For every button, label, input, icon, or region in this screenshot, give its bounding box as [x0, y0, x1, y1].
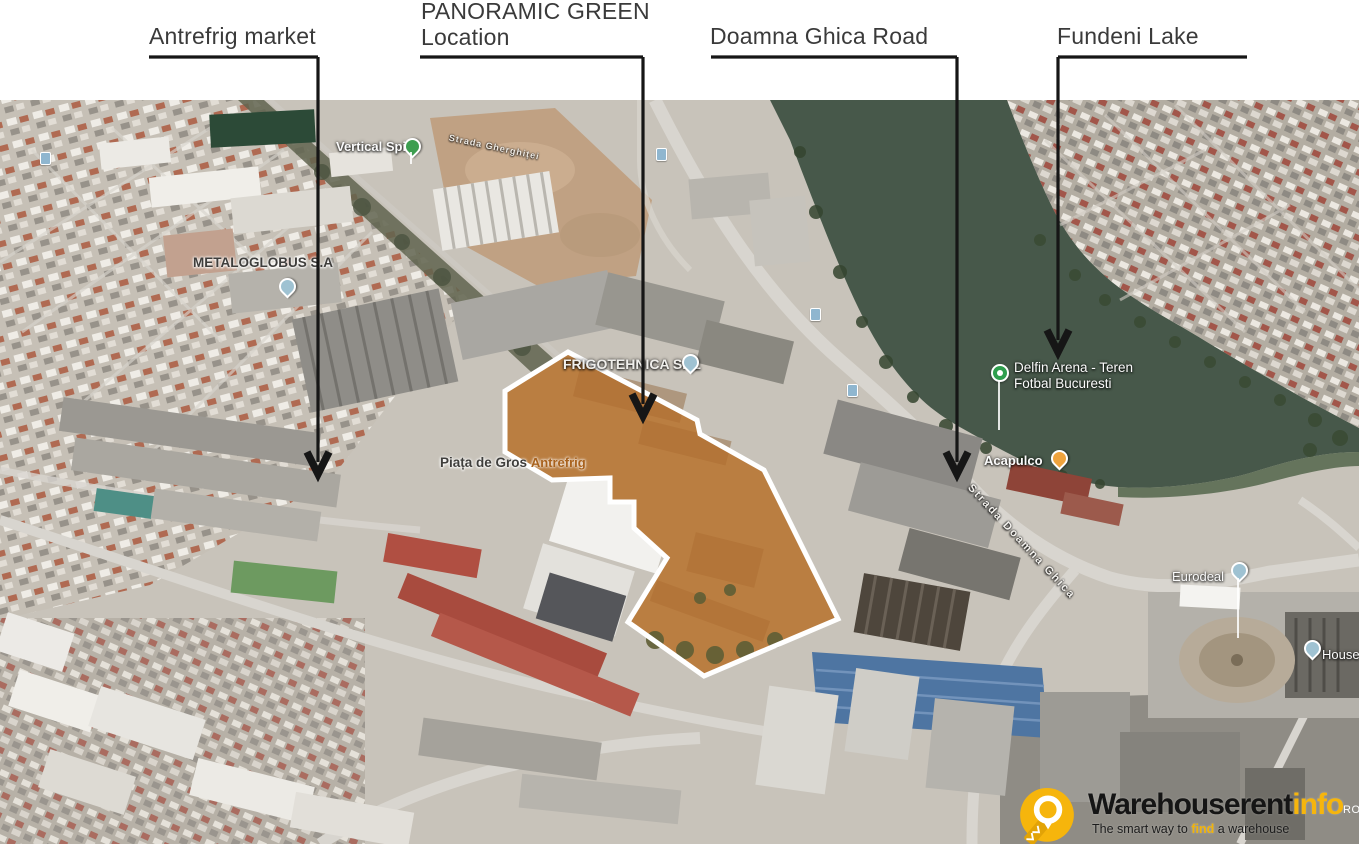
pin-stem [1237, 578, 1239, 638]
watermark-country-code: RO [1343, 804, 1359, 816]
tagline-post: a warehouse [1214, 822, 1289, 836]
map-label-acapulco: Acapulco [984, 453, 1043, 468]
map-label-eurodeal: Eurodeal [1172, 569, 1224, 584]
pin-stem [410, 152, 412, 164]
watermark-tagline: The smart way to find a warehouse [1092, 822, 1289, 836]
map-label-delfin-arena: Delfin Arena - Teren Fotbal Bucuresti [1014, 360, 1133, 392]
pin-stem [998, 380, 1000, 430]
transit-stop-icon [656, 148, 667, 161]
map-label-metaloglobus: METALOGLOBUS S.A [193, 255, 333, 270]
callout-panoramic-green: PANORAMIC GREEN Location [421, 0, 650, 50]
tagline-find: find [1191, 822, 1214, 836]
antrefrig-poi-text: Antrefrig [531, 455, 586, 470]
brand-name: Warehouserent [1088, 788, 1292, 821]
watermark: Warehouserentinfo The smart way to find … [1016, 786, 1359, 844]
watermark-brand: Warehouserentinfo [1088, 788, 1343, 822]
brand-suffix: info [1292, 788, 1343, 821]
delfin-line1: Delfin Arena - Teren [1014, 360, 1133, 376]
callout-antrefrig-market: Antrefrig market [149, 23, 316, 49]
map-label-frigotehnica: FRIGOTEHNICA SRL [563, 356, 701, 372]
satellite-map-image [0, 0, 1359, 844]
callout-panoramic-line2: Location [421, 24, 650, 50]
map-label-piata-de-gros: Piața de Gros Antrefrig [440, 455, 586, 470]
warehouserent-logo-icon [1016, 788, 1078, 844]
callout-fundeni-lake: Fundeni Lake [1057, 23, 1199, 49]
callout-doamna-ghica-road: Doamna Ghica Road [710, 23, 928, 49]
piata-de-gros-text: Piața de Gros [440, 455, 527, 470]
delfin-line2: Fotbal Bucuresti [1014, 376, 1133, 392]
transit-stop-icon [810, 308, 821, 321]
transit-stop-icon [40, 152, 51, 165]
delfin-arena-pin-icon [991, 364, 1009, 382]
callout-panoramic-line1: PANORAMIC GREEN [421, 0, 650, 24]
annotated-satellite-map: Vertical Spirit Strada Gherghiței METALO… [0, 0, 1359, 844]
tagline-pre: The smart way to [1092, 822, 1191, 836]
map-label-house: House [1322, 647, 1359, 662]
transit-stop-icon [847, 384, 858, 397]
